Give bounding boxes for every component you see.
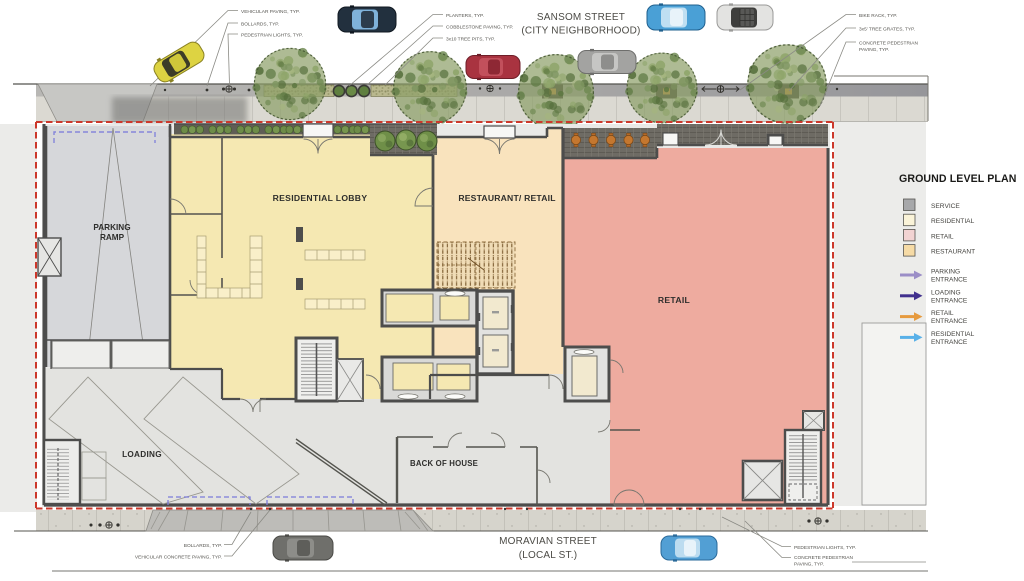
svg-text:PARKING: PARKING	[93, 223, 130, 232]
svg-text:GROUND LEVEL PLAN: GROUND LEVEL PLAN	[899, 173, 1016, 185]
svg-text:PARKING: PARKING	[931, 269, 960, 276]
svg-text:RETAIL: RETAIL	[931, 233, 954, 240]
svg-text:MORAVIAN STREET: MORAVIAN STREET	[499, 536, 597, 547]
svg-text:RETAIL: RETAIL	[658, 295, 690, 305]
svg-text:RESTAURANT/ RETAIL: RESTAURANT/ RETAIL	[458, 193, 555, 203]
svg-text:BOLLARDS, TYP.: BOLLARDS, TYP.	[241, 22, 279, 28]
svg-text:ENTRANCE: ENTRANCE	[931, 318, 968, 325]
svg-text:RESIDENTIAL: RESIDENTIAL	[931, 218, 975, 225]
svg-text:PAVING, TYP.: PAVING, TYP.	[859, 47, 889, 53]
svg-text:3x10 TREE PITS, TYP.: 3x10 TREE PITS, TYP.	[446, 37, 495, 43]
svg-text:PAVING, TYP.: PAVING, TYP.	[794, 562, 824, 568]
svg-text:PEDESTRIAN LIGHTS, TYP.: PEDESTRIAN LIGHTS, TYP.	[241, 33, 303, 39]
svg-text:(CITY NEIGHBORHOOD): (CITY NEIGHBORHOOD)	[521, 26, 640, 37]
svg-text:VEHICULAR PAVING, TYP.: VEHICULAR PAVING, TYP.	[241, 9, 300, 15]
svg-text:RAMP: RAMP	[100, 233, 125, 242]
svg-text:ENTRANCE: ENTRANCE	[931, 339, 968, 346]
svg-text:BOLLARDS, TYP.: BOLLARDS, TYP.	[184, 543, 222, 549]
svg-text:CONCRETE PEDESTRIAN: CONCRETE PEDESTRIAN	[859, 41, 918, 47]
svg-text:3x5' TREE GRATES, TYP.: 3x5' TREE GRATES, TYP.	[859, 27, 915, 33]
svg-text:PEDESTRIAN LIGHTS, TYP.: PEDESTRIAN LIGHTS, TYP.	[794, 545, 856, 551]
svg-text:BIKE RACK, TYP.: BIKE RACK, TYP.	[859, 13, 897, 19]
svg-text:ENTRANCE: ENTRANCE	[931, 297, 968, 304]
svg-text:RETAIL: RETAIL	[931, 310, 954, 317]
svg-text:SERVICE: SERVICE	[931, 203, 960, 210]
svg-text:RESTAURANT: RESTAURANT	[931, 249, 975, 256]
svg-text:RESIDENTIAL LOBBY: RESIDENTIAL LOBBY	[273, 193, 368, 203]
svg-text:BACK OF HOUSE: BACK OF HOUSE	[410, 459, 478, 468]
svg-text:COBBLESTONE PAVING, TYP.: COBBLESTONE PAVING, TYP.	[446, 25, 513, 31]
svg-text:PLANTERS, TYP.: PLANTERS, TYP.	[446, 13, 484, 19]
svg-text:SANSOM STREET: SANSOM STREET	[537, 12, 625, 23]
svg-text:RESIDENTIAL: RESIDENTIAL	[931, 331, 975, 338]
svg-text:ENTRANCE: ENTRANCE	[931, 277, 968, 284]
svg-text:LOADING: LOADING	[122, 450, 162, 459]
svg-text:VEHICULAR CONCRETE PAVING, TYP: VEHICULAR CONCRETE PAVING, TYP.	[135, 555, 222, 561]
svg-text:CONCRETE PEDESTRIAN: CONCRETE PEDESTRIAN	[794, 555, 853, 561]
svg-text:(LOCAL ST.): (LOCAL ST.)	[519, 550, 578, 561]
svg-text:LOADING: LOADING	[931, 289, 961, 296]
